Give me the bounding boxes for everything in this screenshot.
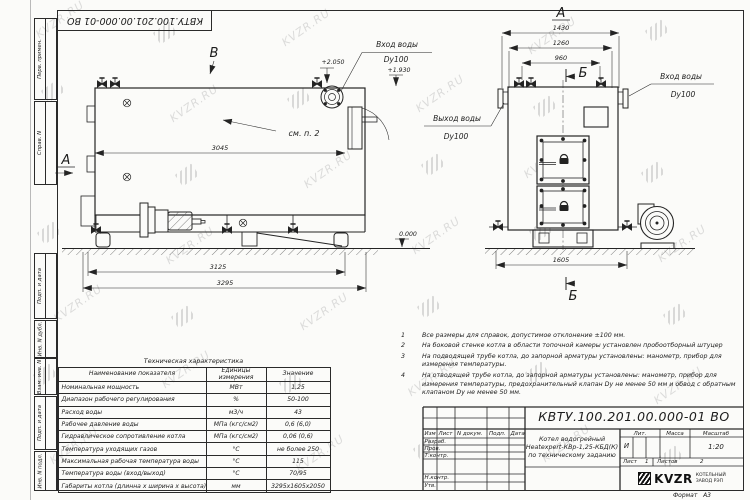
spec-row: Рабочее давление водыМПа (кгс/см2)0,6 (6… (58, 418, 330, 430)
section-label-b-top: Б (579, 66, 588, 81)
view-label-a-arrow: А (61, 153, 71, 168)
scale-value: 1:20 (708, 443, 724, 451)
kvzr-logo-icon (638, 472, 651, 485)
spec-cell: МПа (кгс/см2) (206, 431, 266, 443)
spec-row: Диапазон рабочего регулирования%50-100 (58, 394, 330, 406)
product-name-line1: Котел водогрейный (539, 436, 605, 443)
spec-row: Расход водым3/ч43 (58, 406, 330, 418)
spec-row: Гидравлическое сопротивление котлаМПа (к… (58, 431, 330, 443)
sheet-label: Лист (623, 459, 637, 465)
dim-1260: 1260 (553, 39, 570, 47)
dim-3295: 3295 (217, 279, 234, 287)
lit-header: Лит. (634, 431, 647, 437)
row-razrab: Разраб. (425, 439, 447, 445)
side-inlet-label: Вход воды (376, 40, 418, 49)
valve-icon (98, 78, 107, 87)
elevation-2050: +2.050 (322, 59, 345, 66)
col-podp: Подп. (489, 431, 506, 437)
spec-cell: м3/ч (206, 406, 266, 418)
sheet-value: 1 (645, 459, 649, 465)
mass-header: Масса (666, 431, 684, 437)
dim-1605: 1605 (553, 256, 570, 264)
dim-1430: 1430 (553, 24, 570, 32)
spec-cell: не более 250 (266, 443, 330, 455)
scale-header: Масштаб (703, 431, 729, 437)
spec-cell: 70/95 (266, 468, 330, 480)
valve-icon (494, 221, 503, 230)
company-name: КОТЕЛЬНЫЙ ЗАВОД РЭП (696, 473, 726, 484)
row-prov: Пров. (425, 446, 441, 452)
spec-cell: МВт (206, 382, 266, 394)
spec-cell: Максимальная рабочая температура воды (58, 455, 206, 467)
row-nkontr: Н.контр. (425, 475, 450, 481)
note-text: Все размеры для справок, допустимое откл… (422, 332, 743, 341)
valve-icon (597, 78, 606, 87)
spec-cell: 50-100 (266, 394, 330, 406)
spec-cell: Температура воды (вход/выход) (58, 468, 206, 480)
spec-cell: Гидравлическое сопротивление котла (58, 431, 206, 443)
sensor-port-icon (239, 219, 247, 227)
spec-cell: Температура уходящих газов (58, 443, 206, 455)
spec-cell: 0,6 (6,0) (266, 418, 330, 430)
spec-cell: Габариты котла (длинна х ширина х высота… (58, 480, 206, 492)
elevation-1930: +1.930 (388, 67, 411, 74)
spec-cell: 0,06 (0,6) (266, 431, 330, 443)
col-data: Дата (511, 431, 525, 437)
valve-icon (111, 78, 120, 87)
side-view (81, 78, 389, 247)
col-dokum: N докум. (457, 431, 483, 437)
section-label-b-bottom: Б (569, 289, 578, 304)
see-note-label: см. п. 2 (289, 129, 320, 138)
spec-row: Максимальная рабочая температура воды°С1… (58, 455, 330, 467)
ground-line (62, 249, 695, 256)
note-number: 2 (396, 342, 422, 351)
dim-3125: 3125 (210, 263, 227, 271)
dim-960: 960 (555, 54, 567, 62)
spec-table-title: Техническая характеристика (58, 357, 330, 367)
upper-furnace-door (537, 136, 589, 184)
row-utv: Утв. (425, 483, 437, 489)
spec-header-cell: Единицы измерения (206, 368, 266, 382)
spec-header-cell: Наименование показателя (58, 368, 206, 382)
note-text: На боковой стенке котла в области топочн… (422, 342, 743, 351)
fan-blower (638, 204, 674, 249)
spec-cell: 115 (266, 455, 330, 467)
spec-cell: Номинальная мощность (58, 382, 206, 394)
note-item: 3На подводящей трубе котла, до запорной … (396, 353, 743, 371)
note-item: 1Все размеры для справок, допустимое отк… (396, 332, 743, 341)
note-item: 2На боковой стенке котла в области топоч… (396, 342, 743, 351)
manufacturer-logo-cell: KVZR КОТЕЛЬНЫЙ ЗАВОД РЭП (621, 467, 743, 490)
front-inlet-label: Вход воды (660, 72, 702, 81)
spec-cell: °С (206, 455, 266, 467)
product-name-line3: по техническому заданию (528, 452, 616, 459)
sensor-port-icon (123, 173, 131, 181)
drawing-sheet: KVZR.RUKVZR.RUKVZR.RUKVZR.RUKVZR.RUKVZR.… (0, 0, 750, 500)
spec-cell: Рабочее давление воды (58, 418, 206, 430)
spec-row: Температура воды (вход/выход)°С70/95 (58, 468, 330, 480)
spec-cell: °С (206, 443, 266, 455)
side-inlet-dn: Dy100 (384, 55, 409, 64)
spec-row: Номинальная мощностьМВт1,25 (58, 382, 330, 394)
spec-row: Габариты котла (длинна х ширина х высота… (58, 480, 330, 492)
lower-furnace-door (537, 186, 589, 228)
spec-cell: мм (206, 480, 266, 492)
spec-cell: Расход воды (58, 406, 206, 418)
front-outlet-label: Выход воды (433, 114, 481, 123)
spec-cell: °С (206, 468, 266, 480)
spec-cell: 1,25 (266, 382, 330, 394)
front-view (489, 78, 674, 250)
front-inlet-dn: Dy100 (671, 90, 696, 99)
col-izm: Изм (425, 431, 436, 437)
dim-3045: 3045 (212, 144, 229, 152)
spec-header-cell: Значение (266, 368, 330, 382)
lit-value: И (624, 442, 629, 450)
title-block-doc-number: КВТУ.100.201.00.000-01 ВО (538, 409, 729, 424)
valve-icon (527, 78, 536, 87)
kvzr-logo-text: KVZR (654, 472, 693, 486)
spec-table: Наименование показателяЕдиницы измерения… (58, 367, 331, 493)
spec-cell: % (206, 394, 266, 406)
note-number: 1 (396, 332, 422, 341)
spec-cell: 43 (266, 406, 330, 418)
valve-icon (623, 221, 632, 230)
drawing-labels: В А Вход воды Dy100 +2.050 +1.930 0.000 … (61, 6, 702, 304)
elevation-zero: 0.000 (399, 231, 417, 238)
valve-icon (313, 78, 322, 87)
spec-cell: МПа (кгс/см2) (206, 418, 266, 430)
note-text: На отводящей трубе котла, до запорной ар… (422, 372, 743, 398)
spec-cell: 3295х1605х2050 (266, 480, 330, 492)
front-outlet-dn: Dy100 (444, 132, 469, 141)
notes-list: 1Все размеры для справок, допустимое отк… (396, 332, 743, 400)
sheets-value: 2 (700, 459, 704, 465)
spec-header-row: Наименование показателяЕдиницы измерения… (58, 368, 330, 382)
inlet-flange-top (321, 86, 343, 108)
format-note: Формат А3 (640, 492, 744, 499)
view-label-b: В (210, 46, 219, 61)
spec-row: Температура уходящих газов°Сне более 250 (58, 443, 330, 455)
sheets-label: Листов (657, 459, 678, 465)
view-label-a: А (556, 6, 566, 21)
row-tkontr: Т.контр. (425, 453, 449, 459)
note-number: 3 (396, 353, 422, 371)
product-name-line2: Heatexpert-КВр-1,25-КБД(К) (526, 444, 618, 451)
sensor-port-icon (123, 99, 131, 107)
note-number: 4 (396, 372, 422, 398)
spec-cell: Диапазон рабочего регулирования (58, 394, 206, 406)
spec-table-section: Техническая характеристика Наименование … (58, 357, 330, 493)
note-item: 4На отводящей трубе котла, до запорной а… (396, 372, 743, 398)
note-text: На подводящей трубе котла, до запорной а… (422, 353, 743, 371)
col-list: Лист (439, 431, 453, 437)
